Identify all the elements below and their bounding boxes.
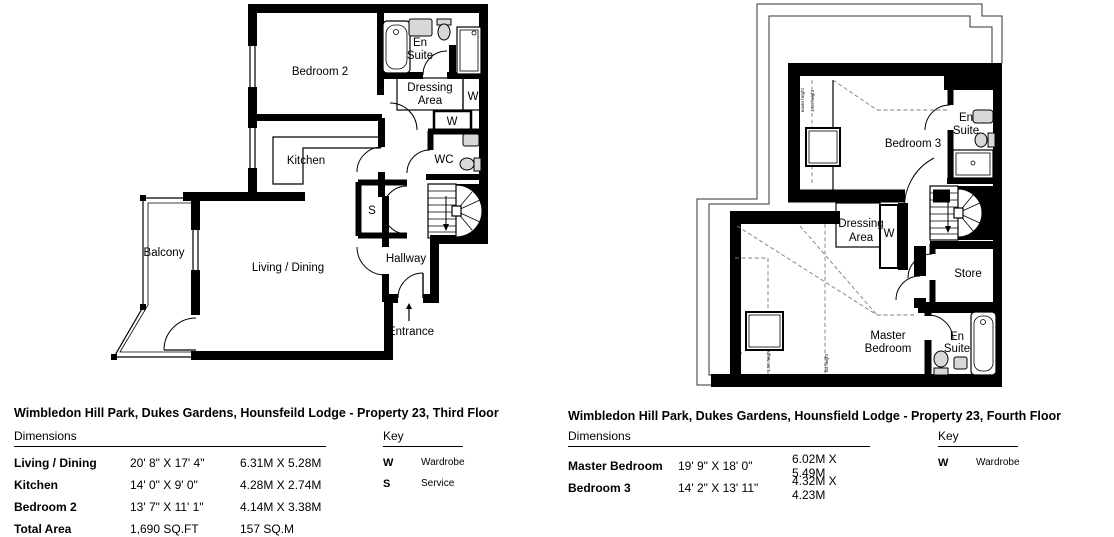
label-entrance: Entrance — [388, 326, 434, 338]
room-label-wc: WC — [434, 154, 453, 166]
toilet-icon — [474, 158, 481, 171]
svg-text:Area: Area — [418, 95, 443, 107]
staircase — [428, 184, 483, 240]
skylight — [746, 312, 783, 350]
svg-text:Area: Area — [849, 232, 874, 244]
room-label-kitchen: Kitchen — [287, 155, 325, 167]
bathtub-icon — [383, 21, 410, 73]
imperial-size: 20' 8" X 17' 4" — [130, 456, 240, 470]
key-symbol: S — [383, 478, 421, 490]
ensuite-fixtures — [383, 19, 481, 74]
key-row: S Service — [383, 473, 463, 494]
svg-text:Suite: Suite — [953, 125, 979, 137]
room-name: Kitchen — [14, 478, 130, 492]
room-label-store: Store — [954, 268, 982, 280]
living-door — [357, 247, 385, 275]
key-label: Wardrobe — [421, 457, 465, 468]
svg-text:Suite: Suite — [944, 343, 970, 355]
floorplan-fourth-floor: Bedroom 3 En Suite Dressing Area W Store… — [697, 4, 1002, 385]
table-row: Bedroom 3 14' 2" X 13' 11" 4.32M X 4.23M — [568, 474, 870, 496]
room-label-dressing: Dressing — [838, 218, 883, 230]
ensuite-top-door — [925, 105, 950, 130]
metric-size: 6.31M X 5.28M — [240, 456, 326, 470]
kitchen-door — [357, 147, 382, 172]
title-third-floor: Wimbledon Hill Park, Dukes Gardens, Houn… — [14, 406, 499, 420]
room-label-balcony: Balcony — [144, 247, 185, 259]
room-label-ensuite-top: En — [959, 112, 973, 124]
height-annotation: 1.5m height — [766, 349, 771, 372]
metric-size: 4.14M X 3.38M — [240, 500, 326, 514]
table-row: Kitchen 14' 0" X 9' 0" 4.28M X 2.74M — [14, 474, 326, 496]
room-name: Bedroom 2 — [14, 500, 130, 514]
key-heading: Key — [383, 429, 463, 447]
label-service: S — [368, 205, 376, 217]
windows — [191, 46, 258, 270]
dimensions-table-third: Dimensions Living / Dining 20' 8" X 17' … — [14, 429, 326, 537]
floorplan-third-floor: Bedroom 2 En Suite Dressing Area W W WC … — [111, 4, 488, 360]
svg-text:Bedroom: Bedroom — [865, 343, 912, 355]
stairs-arrow — [945, 226, 951, 233]
metric-size: 157 SQ.M — [240, 522, 326, 536]
key-symbol: W — [938, 457, 976, 469]
key-row: W Wardrobe — [938, 452, 1018, 473]
table-row: Total Area 1,690 SQ.FT 157 SQ.M — [14, 518, 326, 537]
entrance-arrow — [406, 303, 412, 321]
balcony-door — [164, 315, 201, 351]
imperial-size: 14' 2" X 13' 11" — [678, 481, 792, 495]
room-name: Total Area — [14, 522, 130, 536]
title-fourth-floor: Wimbledon Hill Park, Dukes Gardens, Houn… — [568, 409, 1061, 423]
table-row: Living / Dining 20' 8" X 17' 4" 6.31M X … — [14, 452, 326, 474]
balcony-railing — [111, 195, 196, 360]
master-door — [896, 276, 920, 300]
height-annotation: eaves height — [737, 347, 742, 372]
wc-fixtures — [460, 134, 481, 171]
sink-icon — [409, 19, 432, 36]
room-label-bedroom3: Bedroom 3 — [885, 138, 941, 150]
sink-icon — [973, 110, 993, 123]
table-row: Bedroom 2 13' 7" X 11' 1" 4.14M X 3.38M — [14, 496, 326, 518]
bedroom2-door — [390, 103, 417, 130]
height-annotation: eaves height — [800, 87, 805, 112]
key-table-fourth: Key W Wardrobe — [938, 429, 1018, 473]
dimensions-table-fourth: Dimensions Master Bedroom 19' 9" X 18' 0… — [568, 429, 870, 496]
room-label-ensuite-bottom: En — [950, 331, 964, 343]
label-wardrobe: W — [447, 116, 458, 128]
key-table-third: Key W Wardrobe S Service — [383, 429, 463, 494]
metric-size: 4.28M X 2.74M — [240, 478, 326, 492]
floorplan-page: Bedroom 2 En Suite Dressing Area W W WC … — [0, 0, 1114, 537]
dimensions-heading: Dimensions — [568, 429, 870, 447]
floorplans-drawing: Bedroom 2 En Suite Dressing Area W W WC … — [0, 0, 1114, 400]
svg-text:Suite: Suite — [407, 50, 433, 62]
entrance-door — [398, 273, 423, 298]
height-annotation: full height — [824, 353, 829, 372]
key-heading: Key — [938, 429, 1018, 447]
metric-size: 4.32M X 4.23M — [792, 474, 870, 502]
label-wardrobe: W — [468, 91, 479, 103]
imperial-size: 19' 9" X 18' 0" — [678, 459, 792, 473]
room-label-bedroom2: Bedroom 2 — [292, 66, 348, 78]
sink-icon — [463, 134, 479, 146]
imperial-size: 14' 0" X 9' 0" — [130, 478, 240, 492]
shower-icon — [953, 150, 993, 178]
key-symbol: W — [383, 457, 421, 469]
room-label-living: Living / Dining — [252, 262, 324, 274]
room-label-master: Master — [870, 330, 905, 342]
toilet-icon — [988, 133, 995, 147]
imperial-size: 1,690 SQ.FT — [130, 522, 240, 536]
sink-icon — [954, 357, 967, 369]
wc-door — [407, 150, 430, 173]
room-label-ensuite: En — [413, 37, 427, 49]
height-annotation: 1.5m height — [810, 89, 815, 112]
skylight — [806, 128, 840, 166]
imperial-size: 13' 7" X 11' 1" — [130, 500, 240, 514]
walls — [183, 4, 488, 360]
key-label: Wardrobe — [976, 457, 1020, 468]
dimensions-heading: Dimensions — [14, 429, 326, 447]
label-wardrobe: W — [884, 228, 895, 240]
stairs-arrow — [443, 224, 449, 231]
room-label-hallway: Hallway — [386, 253, 427, 265]
room-name: Master Bedroom — [568, 459, 678, 473]
shower-icon — [457, 27, 481, 74]
room-name: Living / Dining — [14, 456, 130, 470]
key-label: Service — [421, 478, 463, 489]
room-name: Bedroom 3 — [568, 481, 678, 495]
key-row: W Wardrobe — [383, 452, 463, 473]
table-row: Master Bedroom 19' 9" X 18' 0" 6.02M X 5… — [568, 452, 870, 474]
room-label-dressing: Dressing — [407, 82, 452, 94]
